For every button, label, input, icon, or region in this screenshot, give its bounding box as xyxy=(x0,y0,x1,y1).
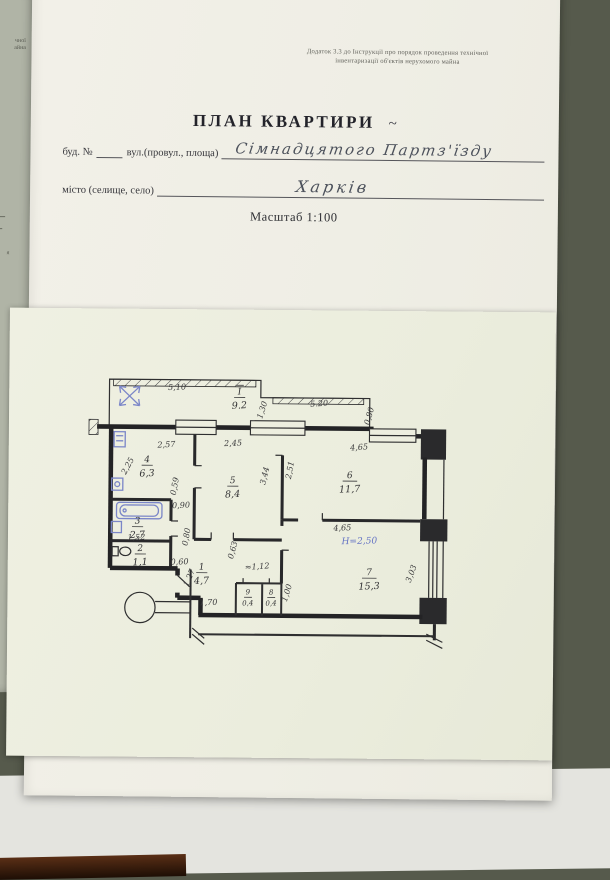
header-note-line2: інвентаризації об'єктів нерухомого майна xyxy=(335,57,459,65)
city-handwritten-value: Харків xyxy=(295,177,371,197)
blue-cross-arrows-icon xyxy=(119,386,139,405)
side-text-fragment: чної айна xyxy=(0,38,26,52)
stove-icon xyxy=(114,432,125,447)
room-area: 1,1 xyxy=(132,557,148,569)
window-openings xyxy=(176,420,416,442)
room-number: 2 xyxy=(136,544,143,554)
toilet-icon xyxy=(112,547,131,556)
city-label: місто (селище, село) xyxy=(62,185,154,197)
washbasin-icon xyxy=(111,521,121,532)
side-line-fragment xyxy=(0,216,5,217)
header-note-line1: Додаток 3.3 до Інструкції про порядок пр… xyxy=(307,48,489,57)
building-label: буд. № xyxy=(62,147,92,158)
room-area: 8,4 xyxy=(225,489,241,501)
room-area: 11,7 xyxy=(339,484,362,496)
dimension-label: 0,90 xyxy=(172,501,190,511)
header-note: Додаток 3.3 до Інструкції про порядок пр… xyxy=(247,48,547,68)
room-area: 0,4 xyxy=(242,598,254,607)
room-area: 2,7 xyxy=(129,529,147,541)
dimension-label: 2,25 xyxy=(119,456,136,477)
title-tilde-mark: ~ xyxy=(389,116,397,132)
street-label: вул.(провул., площа) xyxy=(127,147,219,159)
floor-plan-drawing: 5,101,305.200,802,572,454,652,250,593,44… xyxy=(79,368,522,698)
dimension-label: 3,03 xyxy=(404,564,419,584)
dimension-label: 0,80 xyxy=(363,406,376,426)
room-area: 9.2 xyxy=(232,400,248,412)
dimension-label: 2,51 xyxy=(284,460,296,480)
dimension-label: 0,63 xyxy=(226,540,239,560)
dimension-label: ≈1,12 xyxy=(245,561,270,571)
dimension-label: 4,65 xyxy=(349,442,369,452)
city-underline: Харків xyxy=(157,178,544,201)
scale-label: Масштаб 1:100 xyxy=(30,207,558,228)
room-number: 5 xyxy=(230,476,236,486)
street-underline: Сімнадцятого Партз'їзду xyxy=(221,140,544,162)
room-number: 6 xyxy=(347,471,353,481)
room-number: 8 xyxy=(269,587,274,596)
room-area: 0,4 xyxy=(265,598,277,607)
room-area: 4,7 xyxy=(193,575,211,587)
dimension-label: 5,10 xyxy=(168,383,186,392)
room-area: 6,3 xyxy=(139,468,155,480)
room-number: I xyxy=(237,387,242,397)
room-number: 7 xyxy=(366,568,372,578)
plan-labels: 5,101,305.200,802,572,454,652,250,593,44… xyxy=(118,382,420,609)
field-city: місто (селище, село) Харків xyxy=(62,177,544,201)
dimension-label: 2,57 xyxy=(156,440,176,450)
room-number: 4 xyxy=(143,455,150,465)
dimension-label: 0,80 xyxy=(180,527,192,546)
dimension-label: Н=2,50 xyxy=(340,536,377,547)
side-line-fragment xyxy=(0,228,2,229)
dimension-label: 0,59 xyxy=(169,477,181,496)
page-title: ПЛАН КВАРТИРИ~ xyxy=(31,109,559,135)
dimension-label: 0,60 xyxy=(170,557,188,566)
room-area: 15,3 xyxy=(358,581,380,593)
dimension-label: 5.20 xyxy=(310,399,328,409)
desk-edge xyxy=(0,854,186,880)
street-handwritten-value: Сімнадцятого Партз'їзду xyxy=(234,139,494,160)
dimension-label: 4,65 xyxy=(332,523,351,533)
building-number-blank xyxy=(97,157,123,158)
room-number: 1 xyxy=(199,563,205,573)
dimension-label: 1,30 xyxy=(255,400,269,420)
floor-plan-sheet: 5,101,305.200,802,572,454,652,250,593,44… xyxy=(6,308,556,761)
room-number: 3 xyxy=(134,517,140,527)
sink-icon xyxy=(112,478,123,490)
side-text-fragment: я xyxy=(0,250,9,257)
room-number: 9 xyxy=(245,587,250,596)
dimension-label: 1,70 xyxy=(199,598,217,607)
dimension-label: 3,44 xyxy=(258,466,271,486)
photo-of-document: { "colors":{"backdrop":"#565a4c","page":… xyxy=(0,0,610,873)
dimension-label: 2,45 xyxy=(223,438,242,448)
field-building-street: буд. № вул.(провул., площа) Сімнадцятого… xyxy=(62,139,544,163)
